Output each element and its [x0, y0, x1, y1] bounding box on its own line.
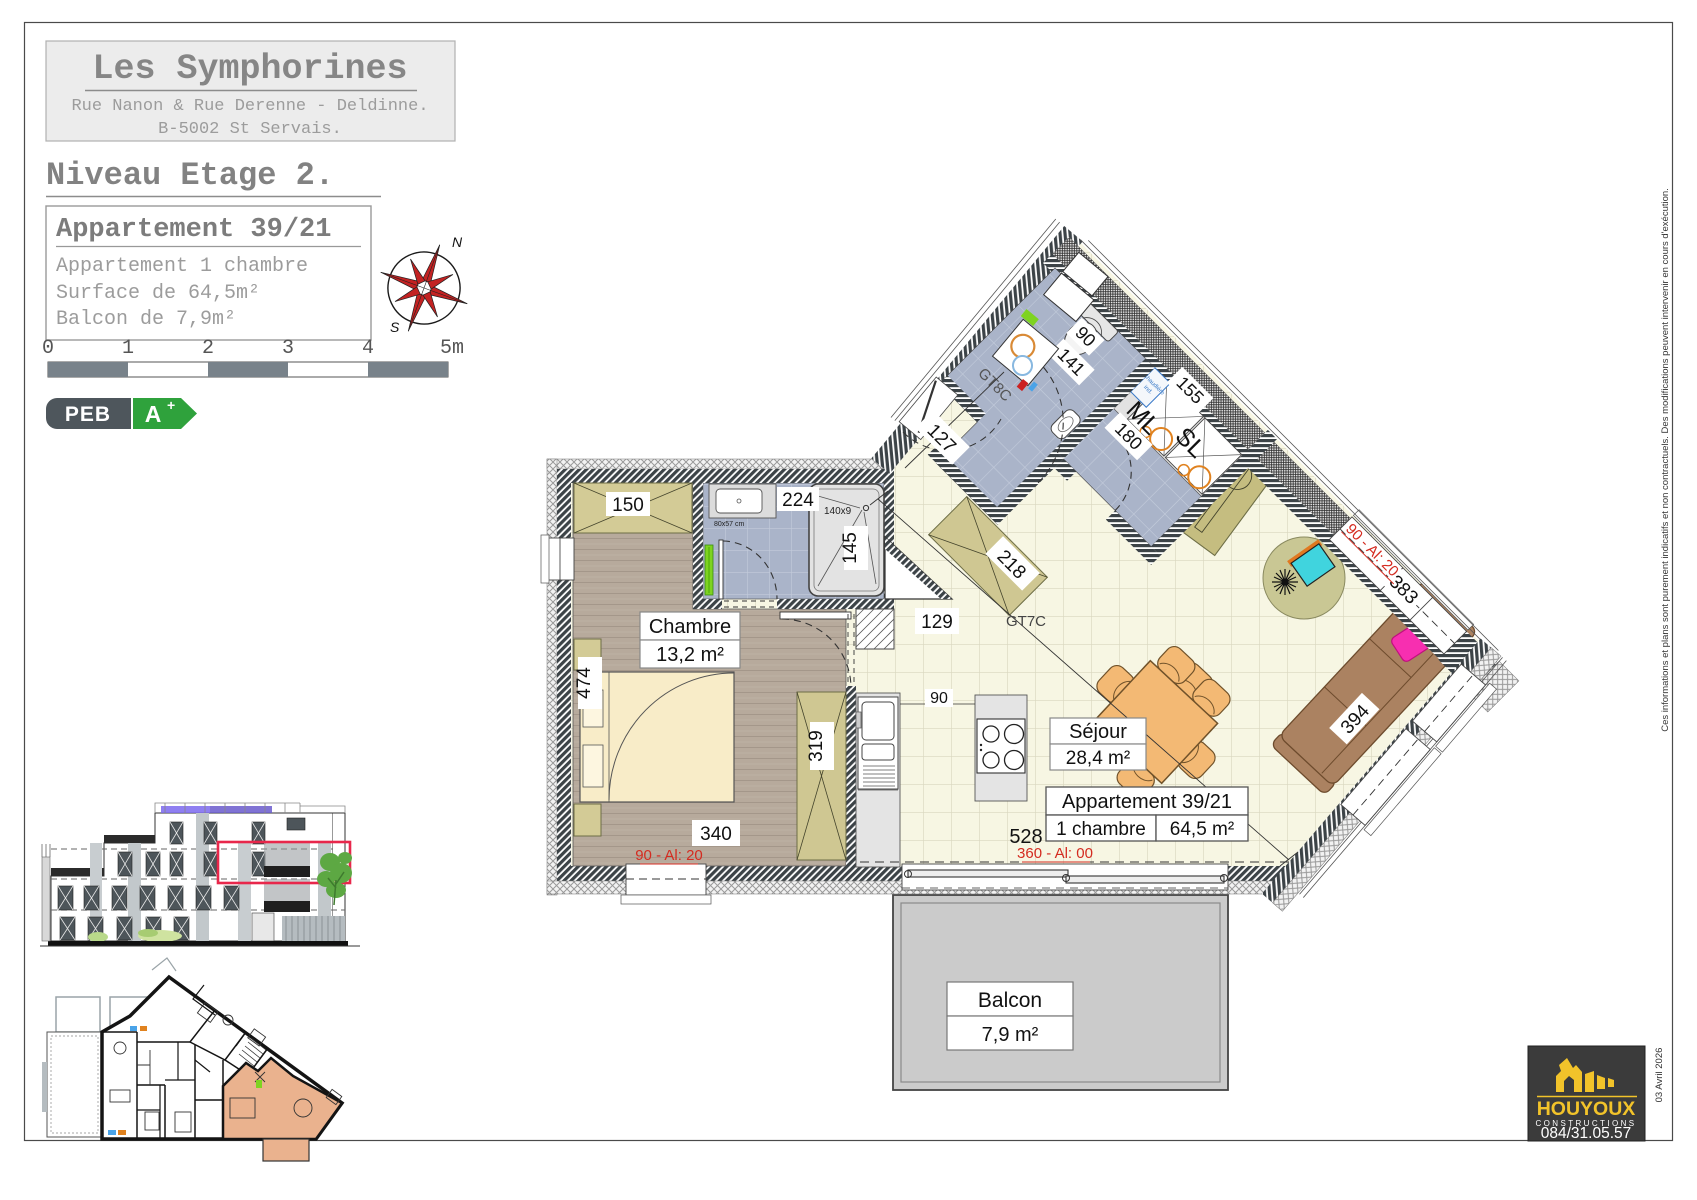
svg-text:Niveau Etage 2.: Niveau Etage 2. — [46, 157, 334, 194]
svg-text:129: 129 — [921, 612, 953, 633]
svg-text:Surface de 64,5m²: Surface de 64,5m² — [56, 282, 260, 305]
svg-text:Appartement 39/21: Appartement 39/21 — [1062, 791, 1232, 813]
svg-text:319: 319 — [806, 730, 827, 762]
svg-text:N: N — [452, 234, 463, 250]
svg-text:Appartement 1 chambre: Appartement 1 chambre — [56, 255, 308, 278]
svg-text:7,9 m²: 7,9 m² — [982, 1024, 1039, 1046]
svg-text:4: 4 — [362, 337, 374, 360]
svg-text:Chambre: Chambre — [649, 616, 731, 638]
svg-text:Rue Nanon & Rue Derenne - Deld: Rue Nanon & Rue Derenne - Deldinne. — [71, 97, 428, 116]
svg-text:GT7C: GT7C — [1006, 613, 1046, 630]
svg-text:3: 3 — [282, 337, 294, 360]
svg-text:224: 224 — [782, 490, 814, 511]
svg-text:90 - Al: 20: 90 - Al: 20 — [635, 847, 703, 864]
svg-text:140x9: 140x9 — [824, 506, 852, 517]
svg-text:1 chambre: 1 chambre — [1056, 819, 1146, 840]
svg-text:5m: 5m — [440, 337, 464, 360]
svg-text:13,2 m²: 13,2 m² — [656, 644, 724, 666]
svg-text:A: A — [145, 401, 162, 427]
svg-text:2: 2 — [202, 337, 214, 360]
svg-text:0: 0 — [42, 337, 54, 360]
svg-text:S: S — [390, 319, 400, 335]
svg-text:150: 150 — [612, 495, 644, 516]
svg-text:Balcon: Balcon — [978, 989, 1042, 1012]
svg-text:Séjour: Séjour — [1069, 721, 1127, 743]
svg-text:HOUYOUX: HOUYOUX — [1537, 1098, 1636, 1120]
svg-text:+: + — [167, 397, 175, 413]
svg-text:03 Avril 2026: 03 Avril 2026 — [1654, 1048, 1665, 1103]
svg-text:Appartement 39/21: Appartement 39/21 — [56, 215, 331, 245]
svg-text:474: 474 — [574, 667, 595, 699]
svg-text:1: 1 — [122, 337, 134, 360]
svg-text:340: 340 — [700, 824, 732, 845]
svg-text:360 - Al: 00: 360 - Al: 00 — [1017, 845, 1093, 862]
svg-text:145: 145 — [840, 532, 861, 564]
svg-text:Les Symphorines: Les Symphorines — [92, 49, 407, 89]
svg-text:Ces informations et plans sont: Ces informations et plans sont purement … — [1660, 188, 1671, 732]
svg-text:PEB: PEB — [65, 403, 111, 426]
svg-text:084/31.05.57: 084/31.05.57 — [1541, 1125, 1632, 1142]
svg-text:B-5002 St Servais.: B-5002 St Servais. — [158, 120, 342, 139]
svg-text:90: 90 — [930, 690, 948, 707]
svg-text:28,4 m²: 28,4 m² — [1066, 748, 1130, 769]
svg-text:64,5 m²: 64,5 m² — [1170, 819, 1234, 840]
svg-text:Balcon de 7,9m²: Balcon de 7,9m² — [56, 308, 236, 331]
svg-text:80x57 cm: 80x57 cm — [714, 521, 745, 528]
